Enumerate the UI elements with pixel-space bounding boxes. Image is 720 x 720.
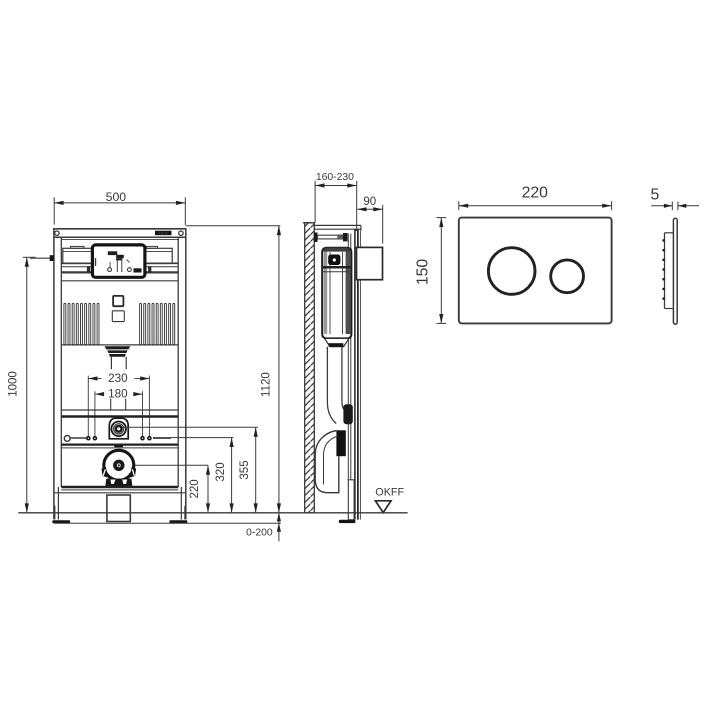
svg-text:220: 220 <box>522 185 549 202</box>
svg-text:0-200: 0-200 <box>246 528 273 539</box>
svg-text:OKFF: OKFF <box>375 486 404 498</box>
svg-text:90: 90 <box>363 196 376 208</box>
svg-text:180: 180 <box>108 388 128 401</box>
svg-text:220: 220 <box>189 479 201 498</box>
svg-text:1120: 1120 <box>260 372 272 397</box>
svg-text:500: 500 <box>106 190 127 204</box>
svg-text:5: 5 <box>651 187 660 204</box>
svg-text:TECE: TECE <box>109 251 116 255</box>
svg-text:320: 320 <box>215 462 227 481</box>
svg-text:1000: 1000 <box>7 371 19 397</box>
svg-text:355: 355 <box>239 460 251 479</box>
svg-text:160-230: 160-230 <box>316 172 354 183</box>
svg-text:230: 230 <box>108 372 128 385</box>
svg-text:150: 150 <box>415 259 432 286</box>
svg-text:TECE: TECE <box>158 232 168 236</box>
